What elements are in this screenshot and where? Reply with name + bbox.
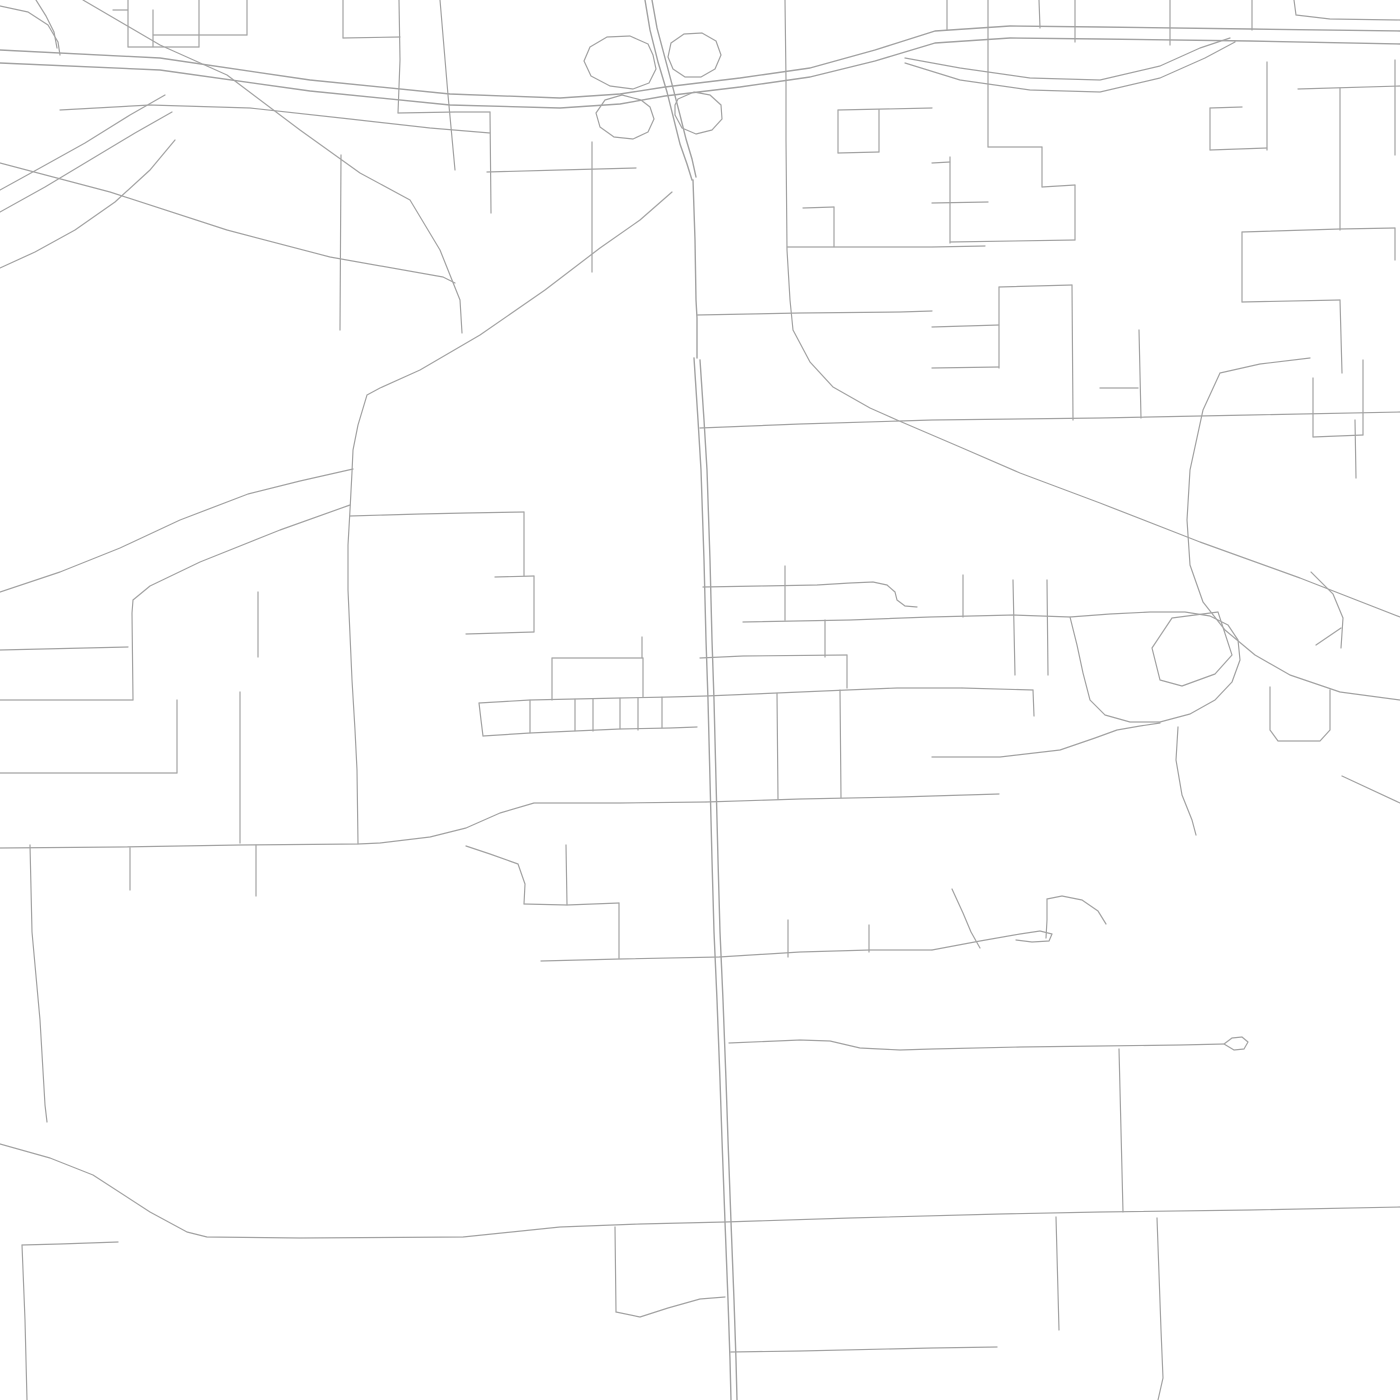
road-v566 [566,845,567,905]
road-h247 [787,246,985,247]
road-blk-c-h286 [999,285,1072,287]
road-long-h843 [0,802,706,848]
road-main-road-b [700,360,737,1400]
road-block-ne2-h110 [838,108,932,110]
road-diagonal-ne [83,0,462,333]
road-tr-h203 [932,202,988,203]
road-v777 [777,693,778,799]
road-mr-h229 [1242,228,1395,232]
road-block-a-top [495,576,534,577]
road-h803e [706,794,999,802]
road-v1047 [1047,580,1048,675]
road-block-a-bottom [466,632,534,634]
road-l-road-v [22,1245,27,1400]
road-h430 [700,412,1400,428]
road-sweep-branch-sw [132,505,350,700]
road-v615s [615,1227,616,1312]
road-tr-h187 [1042,185,1075,187]
road-h1350 [731,1347,997,1352]
road-h38 [343,37,400,38]
road-teardrop [1224,1037,1248,1050]
map-canvas [0,0,1400,1400]
road-v1121 [1119,1049,1123,1212]
road-curvy-south [616,1297,725,1317]
road-d-se-short [1342,776,1400,803]
road-ramp-lens-upper [905,38,1230,80]
road-tr-h242 [950,240,1075,242]
road-h1047 [729,1040,1224,1050]
road-tr-h163 [932,162,950,163]
road-v1140 [1139,330,1141,418]
road-freeway-upper [0,26,1400,98]
road-curve-c1 [1187,358,1400,700]
road-main-road-nb-upper [645,0,692,180]
road-h113 [398,112,490,113]
road-arrow-spur [932,931,1052,950]
road-mr-v1340b [1340,300,1342,373]
road-h585-wiggle [703,582,917,607]
road-clover-loop-nw [584,36,656,89]
road-fork-spur [1316,628,1341,645]
road-road-shallow-west [0,163,455,283]
road-h688e [962,688,1033,690]
road-l-road-h [22,1242,118,1245]
road-v1033 [1033,690,1034,716]
road-h315 [697,311,932,315]
road-blk-c-h367 [932,367,999,368]
road-block-ne2-h153 [838,152,879,153]
road-clover-loop-ne [668,33,721,77]
road-v1013 [1013,580,1015,675]
road-s-curve-south [932,723,1160,757]
road-grid-w-h648 [0,647,128,650]
road-curve-pond-c [1047,896,1106,924]
road-long-road-south [0,1144,1400,1238]
road-clover-loop-se [675,92,722,134]
road-h512 [350,512,524,516]
road-tr-v1039 [1039,0,1040,28]
road-main-road-mid [693,180,697,358]
road-ne-avenue [785,0,1400,617]
road-freeway-lower [0,38,1400,108]
road-h170 [487,168,636,172]
road-h612-main [743,615,1070,622]
road-main-road-a [694,358,731,1400]
road-block-ne1-h207 [803,207,834,208]
road-v-slant-448 [440,0,455,170]
road-curve-pond-b [1046,899,1047,938]
road-mr-h107 [1210,107,1242,108]
road-blk-c-v1072 [1072,285,1073,420]
road-v1355 [1355,420,1356,478]
road-ladder-bottom [483,727,697,736]
road-mr-h88 [1298,86,1400,89]
road-curve-pond-a [952,889,980,948]
road-v340 [340,155,341,330]
road-clover-loop-sw [596,95,654,139]
road-sweep-road [348,192,672,844]
road-h960 [541,950,932,961]
road-v1056 [1056,1217,1059,1330]
road-fork-branch [1311,572,1343,648]
road-v490 [490,112,491,213]
road-mr-h301 [1242,300,1340,302]
road-v1158 [1157,1218,1163,1400]
road-wiggle-v1180 [1176,727,1196,835]
road-v399 [398,0,400,113]
road-blk-c-h326 [932,325,999,327]
road-v840 [840,690,841,798]
road-v-nw-south [30,845,47,1122]
road-lake-loop [1070,612,1240,722]
road-ladder-left [479,703,483,736]
road-mr-h150 [1210,148,1267,150]
road-ramp-sw-2 [0,112,172,212]
road-h903 [524,903,619,905]
road-j-hook [466,846,525,904]
road-frontage-ne [1294,0,1400,20]
street-map [0,0,1400,1400]
road-ramp-left-a [0,6,60,55]
road-u-road [1270,687,1330,741]
